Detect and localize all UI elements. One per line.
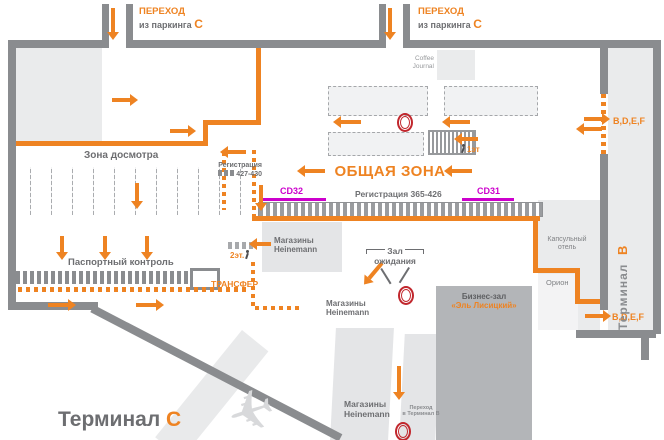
left-arrow-common-1: [305, 169, 325, 173]
coffee-line1: Coffee: [396, 55, 434, 63]
checkin-desks-row: [258, 202, 543, 217]
passage-terminal-letter: C: [194, 17, 203, 31]
right-arrow-gate-b-top: [584, 117, 602, 121]
wall-parking-left-a: [102, 4, 109, 48]
heinemann-upper-label: Магазины Heinemann: [274, 236, 317, 255]
down-arrow-parking-left: [111, 8, 115, 32]
registration-aux-label: Регистрация 427-430: [206, 162, 262, 180]
down-arrow-south-corridor: [397, 366, 401, 392]
wall-bottom-right: [576, 330, 656, 338]
lounge-line2: «Эль Лисицкий»: [436, 301, 532, 310]
registration-aux-line1: Регистрация: [206, 162, 262, 170]
cd31-label: CD31: [477, 186, 500, 197]
lounge-line1: Бизнес-зал: [436, 292, 532, 301]
orion-label: Орион: [546, 279, 569, 288]
capsule-line2: отель: [538, 244, 596, 252]
passage-parking-mid-label: ПЕРЕХОД из паркинга C: [418, 6, 482, 31]
person-stairs-icon: [460, 144, 467, 153]
route-security-v2: [256, 48, 261, 125]
passage-subtitle: из паркинга: [139, 20, 192, 30]
info-point-icon-bottom: [395, 422, 411, 440]
down-arrow-passport-3: [145, 236, 149, 252]
left-arrow-transfer: [257, 242, 271, 246]
down-arrow-passport-1: [60, 236, 64, 252]
heinemann-line2: Heinemann: [344, 409, 390, 419]
heinemann-line2: Heinemann: [274, 245, 317, 254]
desk-squares-icon: [218, 170, 234, 176]
wall-parking-mid-b: [403, 4, 410, 48]
wall-top-mid: [133, 40, 379, 48]
floor1-label: 1эт: [460, 144, 480, 154]
left-arrow-gate-b-top: [584, 127, 602, 131]
passage-subtitle: из паркинга: [418, 20, 471, 30]
transfer-label: ТРАНСФЕР: [211, 279, 258, 289]
waiting-hall-label: Зал ожидания: [368, 246, 422, 266]
terminal-c-name: Терминал: [58, 408, 160, 431]
down-arrow-parking-mid: [388, 8, 392, 32]
heinemann-south-label: Магазины Heinemann: [344, 399, 390, 419]
floor-top-left-room: [16, 48, 102, 142]
checkin-island-1: [328, 86, 428, 116]
passport-booths-row: [16, 271, 188, 284]
heinemann-line2: Heinemann: [326, 308, 369, 317]
right-arrow-after-passport-2: [136, 303, 156, 307]
checkin-island-2: [444, 86, 538, 116]
wall-parking-left-b: [126, 4, 133, 48]
floor-coffee-kiosk: [437, 50, 475, 80]
route-security-h2: [203, 120, 261, 125]
floor2-text: 2эт.: [230, 251, 244, 260]
common-zone-label: ОБЩАЯ ЗОНА: [332, 163, 448, 181]
wall-parking-mid-a: [379, 4, 386, 48]
cd32-label: CD32: [280, 186, 303, 197]
wall-top-right: [410, 40, 661, 48]
wall-top-left: [8, 40, 102, 48]
left-arrow-escalator: [462, 137, 478, 141]
right-arrow-gate-b-bottom: [585, 314, 603, 318]
wall-right-outer: [653, 48, 661, 334]
passage-terminal-b-label: Переход в Терминал B: [402, 405, 440, 418]
info-point-icon-mid: [398, 286, 414, 305]
security-zone-label: Зона досмотра: [84, 150, 158, 162]
waiting-line2: ожидания: [368, 256, 422, 266]
terminal-b-name: Терминал: [616, 264, 630, 330]
passage-parking-left-label: ПЕРЕХОД из паркинга C: [139, 6, 203, 31]
waiting-line1: Зал: [385, 246, 404, 256]
right-arrow-after-passport-1: [48, 303, 68, 307]
heinemann-mid-label: Магазины Heinemann: [326, 299, 369, 318]
capsule-line1: Капсульный: [538, 236, 596, 244]
cd32-stand-line: [262, 198, 326, 201]
left-arrow-security: [228, 150, 246, 154]
cd31-stand-line: [462, 198, 514, 201]
dotted-security-line-1: [222, 152, 226, 210]
passage-b-line2: в Терминал B: [402, 411, 440, 417]
person-stairs-icon: [244, 250, 251, 259]
business-lounge-label: Бизнес-зал «Эль Лисицкий»: [436, 292, 532, 311]
heinemann-line1: Магазины: [274, 236, 317, 245]
terminal-c-title: Терминал C: [58, 408, 181, 433]
passport-control-label: Паспортный контроль: [68, 257, 174, 268]
floor2-label: 2эт.: [230, 250, 251, 260]
right-arrow-hall-2: [170, 129, 188, 133]
wall-right-upper: [600, 48, 608, 94]
wall-right-stub: [641, 338, 649, 360]
terminal-c-floor-plan: ПЕРЕХОД из паркинга C ПЕРЕХОД из паркинг…: [0, 0, 664, 440]
passage-title: ПЕРЕХОД: [139, 6, 203, 17]
waiting-hall-line-right: [399, 267, 410, 283]
dotted-transfer-line-h: [255, 306, 303, 310]
terminal-b-letter: B: [615, 245, 630, 255]
down-arrow-security-1: [135, 183, 139, 201]
left-arrow-common-2: [452, 169, 472, 173]
down-arrow-security-2: [259, 185, 263, 203]
info-point-icon-top: [397, 113, 413, 132]
registration-aux-line2: 427-430: [236, 171, 262, 178]
terminal-b-label: Терминал B: [615, 195, 630, 330]
floor-dutyfree-left: [330, 328, 394, 440]
terminal-c-letter: C: [166, 408, 181, 431]
right-arrow-hall-1: [112, 98, 130, 102]
wall-right-mid: [600, 154, 608, 310]
coffee-kiosk-label: Coffee Journal: [396, 55, 434, 70]
waiting-hall-line-left: [381, 268, 392, 284]
down-arrow-passport-2: [103, 236, 107, 252]
capsule-hotel-label: Капсульный отель: [538, 236, 596, 253]
floor1-text: 1эт: [467, 145, 480, 154]
registration-main-label: Регистрация 365-426: [355, 189, 442, 199]
coffee-line2: Journal: [396, 63, 434, 71]
route-exit-h1: [533, 268, 580, 273]
left-arrow-island-1: [341, 120, 361, 124]
route-checkin-h: [252, 216, 540, 221]
wall-left: [8, 48, 16, 310]
heinemann-line1: Магазины: [326, 299, 369, 308]
gates-bdef-top-label: B,D,E,F: [613, 116, 645, 127]
checkin-island-3: [328, 132, 424, 156]
passage-title: ПЕРЕХОД: [418, 6, 482, 17]
passage-terminal-letter: C: [473, 17, 482, 31]
heinemann-line1: Магазины: [344, 399, 390, 409]
route-security-h: [10, 141, 208, 146]
left-arrow-island-2: [450, 120, 470, 124]
